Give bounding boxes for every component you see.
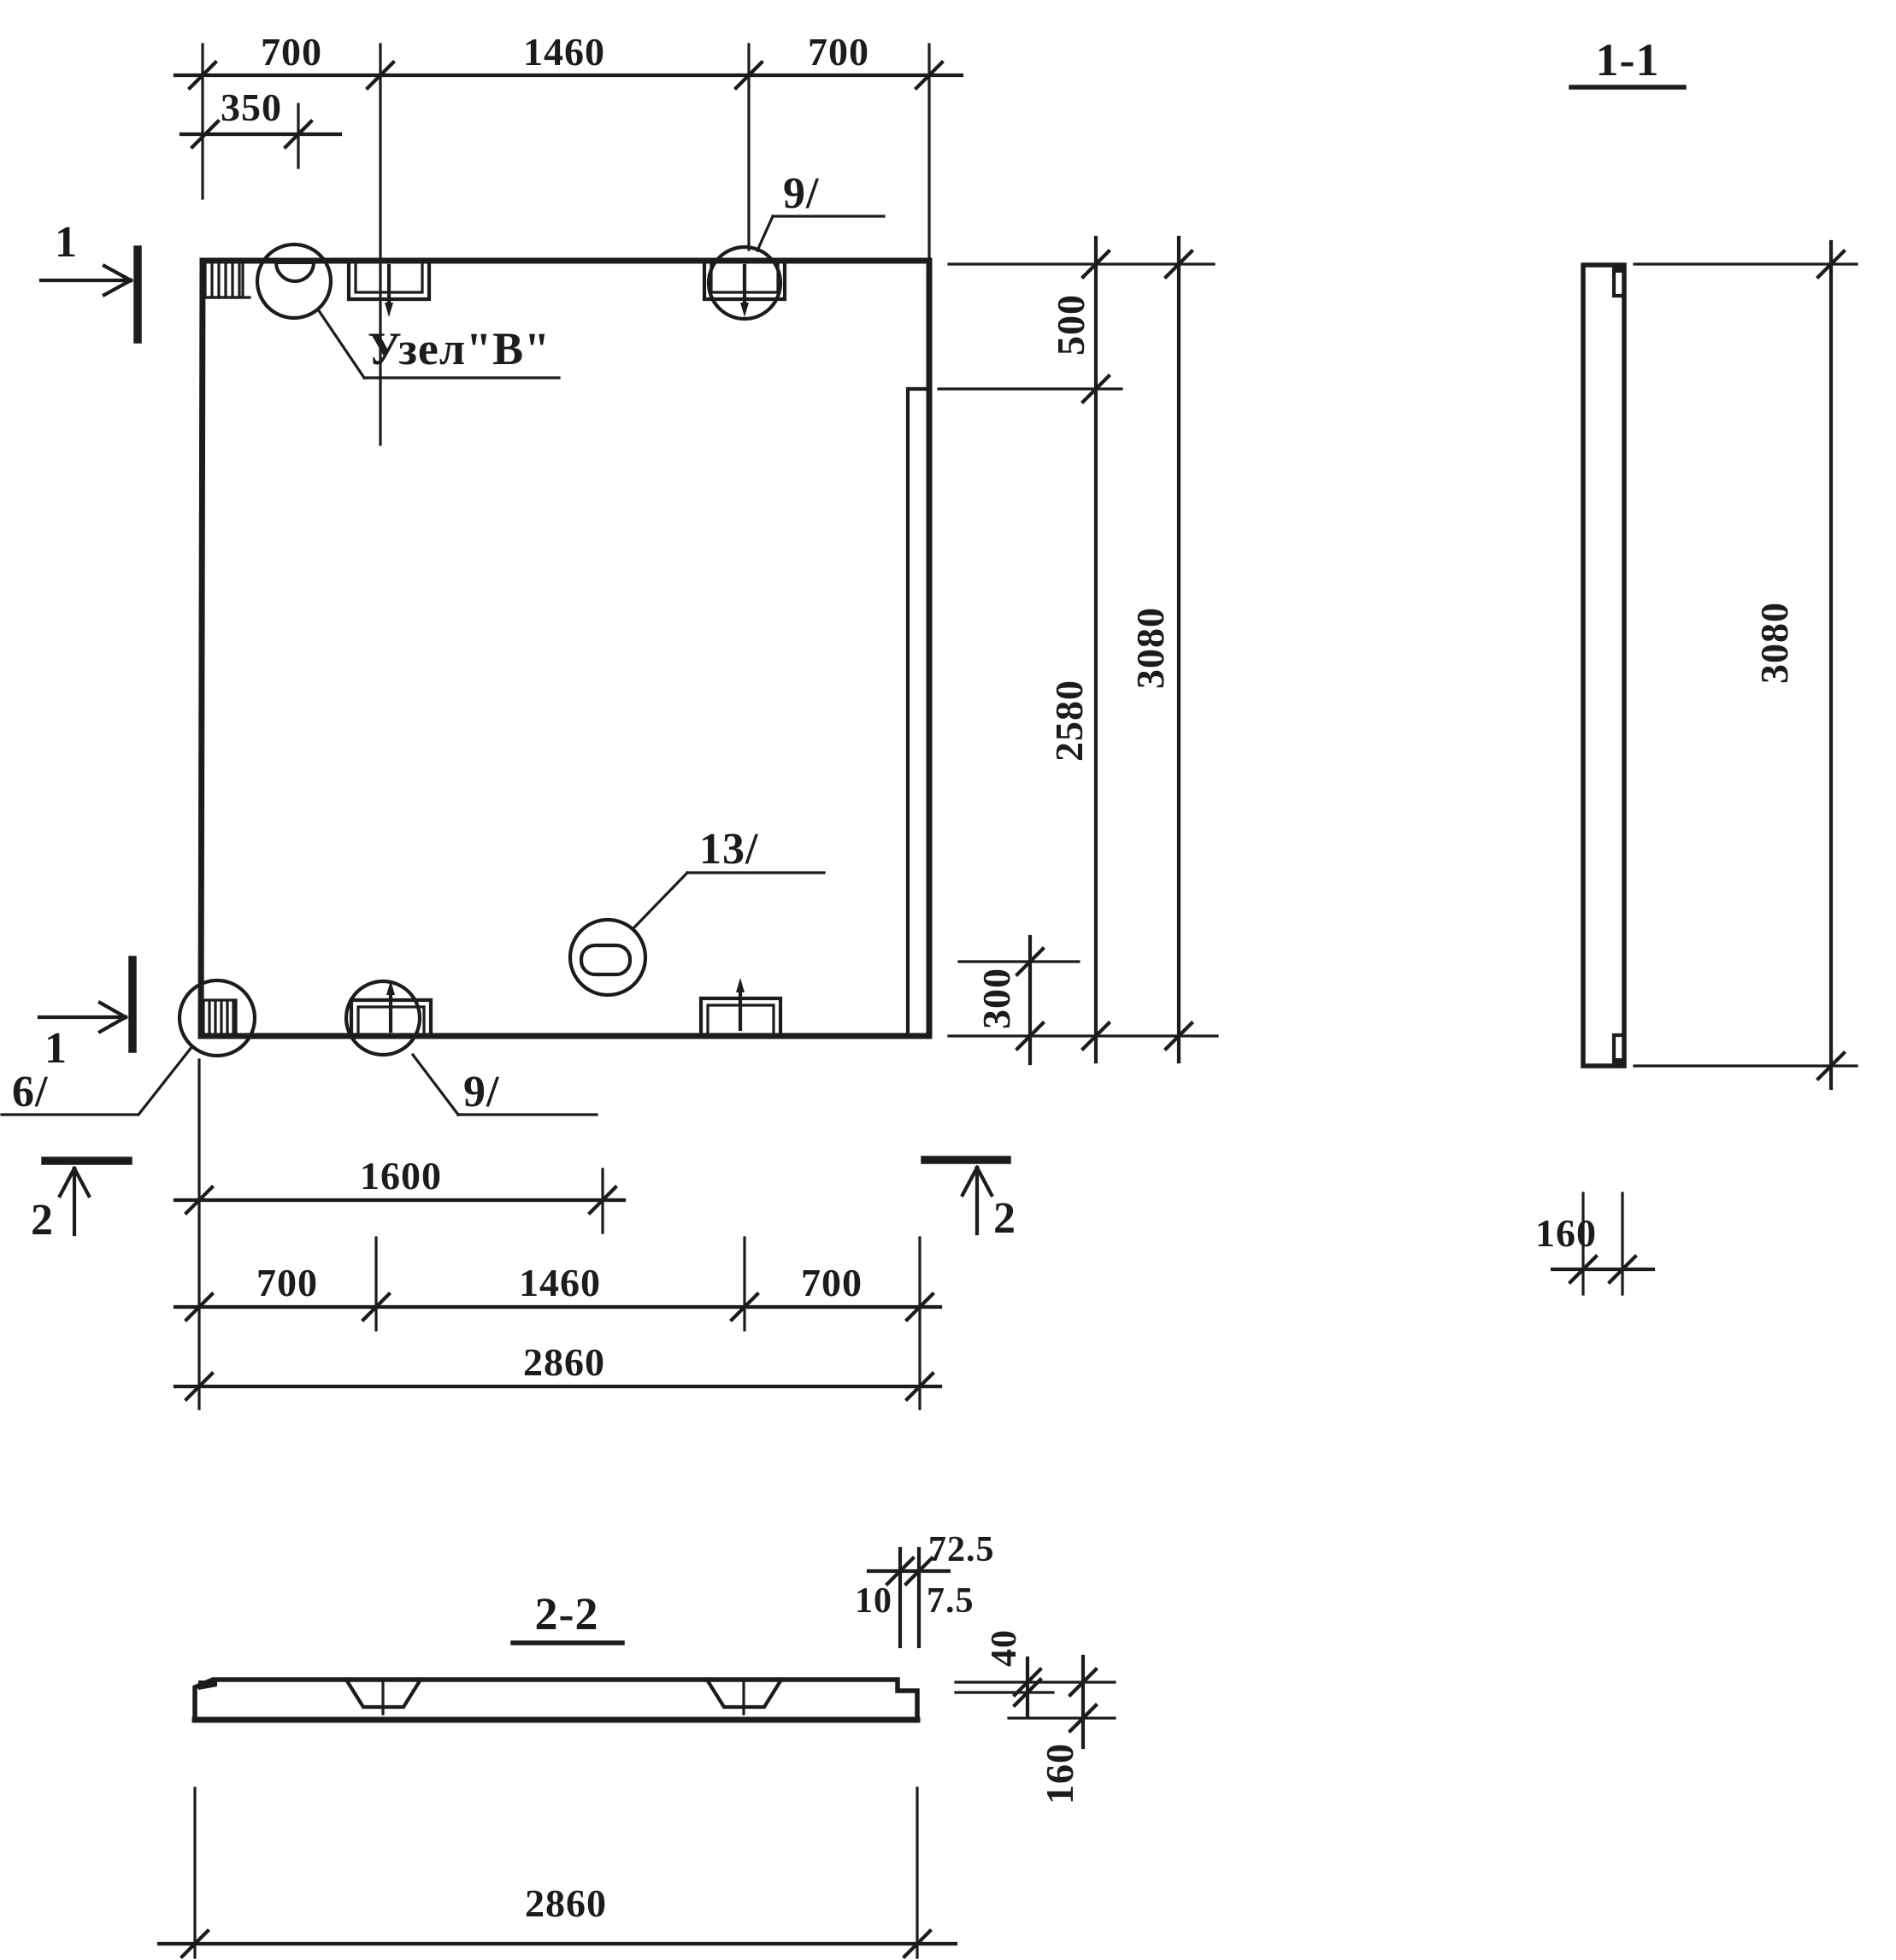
dim-label: 10 [855, 1581, 892, 1621]
dim-label: 2580 [1047, 680, 1091, 762]
cut-marker-2-left: 2 [31, 1161, 128, 1245]
plan-anchor-bottom-left [180, 980, 255, 1056]
section-1-1: 1-1 3080 160 [1535, 34, 1857, 1294]
thickness-dimension: 160 [1009, 1657, 1115, 1804]
section-title: 2-2 [535, 1588, 599, 1639]
plan-dimensions-right: 500 2580 3080 300 [939, 238, 1217, 1063]
callout-9-top: 9/ [757, 169, 884, 250]
dim-label: 3080 [1128, 607, 1172, 689]
dim-label: 700 [261, 30, 322, 74]
slab-profile [195, 1680, 917, 1720]
callout-13: 13/ [634, 825, 824, 927]
dim-label: 72.5 [928, 1530, 995, 1569]
dim-label: 7.5 [927, 1581, 974, 1621]
dim-label: 1600 [360, 1154, 442, 1198]
dim-label: 1460 [519, 1261, 601, 1304]
dim-label: 160 [1038, 1743, 1081, 1804]
dim-label: 700 [801, 1261, 863, 1304]
plan-embed-bottom-2 [701, 978, 780, 1036]
notch-dimensions: 72.5 10 7.5 [855, 1530, 995, 1646]
plan-dimensions-top: 700 1460 700 350 [175, 30, 962, 444]
cut-label: 1 [44, 1024, 68, 1073]
callout-9-bottom: 9/ [413, 1055, 597, 1116]
plan-dimensions-below: 1600 700 1460 700 2860 [175, 1060, 940, 1409]
dim-label: 300 [974, 968, 1018, 1029]
callout-label: 6/ [12, 1068, 48, 1116]
cut-label: 2 [993, 1194, 1016, 1243]
plan-embed-bottom-1 [346, 980, 431, 1055]
section-2-2: 2-2 72.5 10 7.5 40 [159, 1530, 1115, 1957]
cut-label: 1 [55, 218, 78, 267]
section-title: 1-1 [1596, 34, 1660, 85]
plan-outline [201, 261, 929, 1036]
callout-label: 13/ [699, 825, 758, 874]
drawing-canvas: Узел"В" 9/ 6/ [0, 0, 1896, 1960]
dim-label: 2860 [523, 1340, 605, 1384]
engineering-drawing: Узел"В" 9/ 6/ [0, 0, 1896, 1960]
dim-label: 2860 [525, 1881, 607, 1925]
cut-marker-1-top: 1 [41, 218, 138, 339]
node-b-detail: Узел"В" [257, 244, 559, 378]
dim-label: 3080 [1752, 602, 1796, 684]
cut-label: 2 [31, 1196, 54, 1245]
plan-anchor-top-left [205, 262, 250, 297]
plan-slot [570, 920, 645, 995]
cut-marker-1-bottom: 1 [39, 960, 132, 1073]
callout-label: 9/ [463, 1068, 499, 1116]
dim-label: 700 [808, 30, 869, 74]
dim-label: 1460 [523, 30, 605, 74]
dim-label: 160 [1535, 1211, 1597, 1255]
callout-6: 6/ [2, 1046, 192, 1116]
dim-label: 350 [221, 85, 282, 129]
cut-marker-2-right: 2 [925, 1160, 1016, 1243]
dim-label: 700 [256, 1261, 318, 1304]
dim-label: 40 [985, 1629, 1024, 1667]
detail-circle [180, 980, 255, 1056]
callout-label: 9/ [783, 169, 819, 218]
node-b-label: Узел"В" [368, 323, 551, 374]
width-dimension: 2860 [159, 1788, 956, 1957]
dim-label: 500 [1049, 294, 1092, 356]
plan-embed-top-1 [349, 262, 429, 317]
